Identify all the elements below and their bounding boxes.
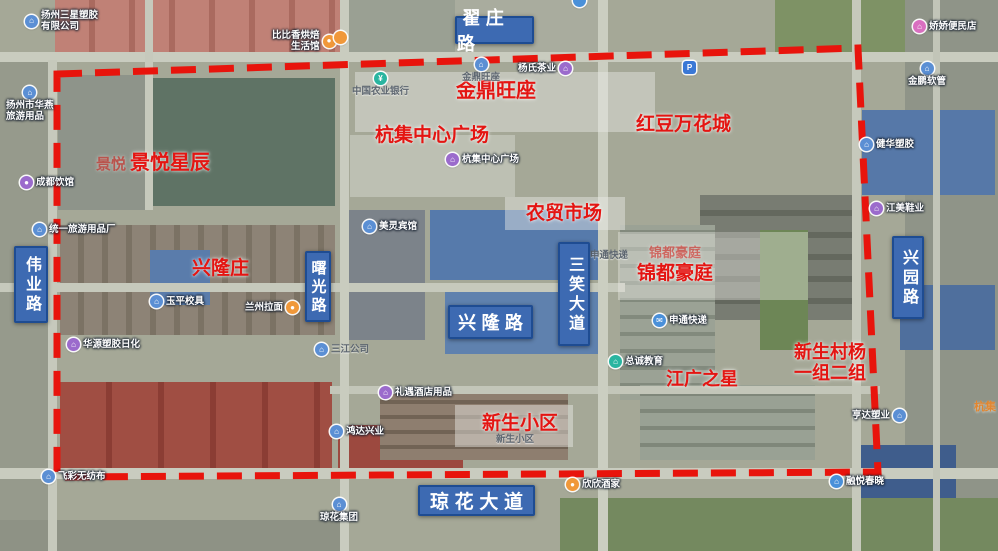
road-label: 伟业路 [14, 246, 48, 323]
poi-label-text: 扬州市华燕 旅游用品 [6, 100, 54, 123]
poi-label-text: 成都饮馆 [36, 177, 74, 188]
building-icon: ⌂ [33, 223, 46, 236]
poi-label-text: 华源塑胶日化 [83, 339, 140, 350]
poi-label-text: 杭集中心广场 [462, 154, 519, 165]
building-icon: ⌂ [150, 295, 163, 308]
poi-xinsheng-community: 新生小区 [496, 434, 534, 445]
terrain-patch [345, 0, 455, 55]
building-icon: ⌂ [893, 409, 906, 422]
area-label: 景悦 [96, 156, 126, 174]
poi-huayan-travel-goods: ⌂扬州市华燕 旅游用品 [6, 86, 54, 123]
poi-shentong-express-1: 申通快递 [590, 250, 628, 261]
map-pin-icon [573, 0, 586, 7]
building-icon: ⌂ [921, 62, 934, 75]
poi-label-text: 娇娇便民店 [929, 21, 977, 32]
terrain-patch [640, 385, 815, 460]
poi-hongda-xingye: ⌂鸿达兴业 [330, 425, 384, 438]
terrain-patch [862, 110, 995, 195]
poi-hangji-town: 杭集 [974, 401, 996, 414]
satellite-map: 景悦景悦星辰金鼎旺座杭集中心广场红豆万花城农贸市场兴隆庄锦都豪庭锦都豪庭江广之星… [0, 0, 998, 551]
poi-label-text: 扬州三星塑胶 有限公司 [41, 10, 98, 33]
road-label: 翟庄路 [455, 16, 534, 44]
poi-label-text: 金鹏软管 [908, 76, 946, 87]
poi-label-text: 金鼎旺座 [462, 72, 500, 83]
plaza-icon: ⌂ [446, 153, 459, 166]
poi-orange-dot [334, 31, 347, 44]
building-icon: ⌂ [42, 470, 55, 483]
poi-bibixiang-bakery: ●比比香烘焙 生活馆 [272, 30, 336, 53]
poi-label-text: 新生小区 [496, 434, 534, 445]
building-icon: ⌂ [330, 425, 343, 438]
restaurant-icon: ● [286, 301, 299, 314]
shop-icon: ⌂ [559, 62, 572, 75]
poi-label-text: 礼遇酒店用品 [395, 387, 452, 398]
poi-hangji-plaza: ⌂杭集中心广场 [446, 153, 519, 166]
road-label: 琼花大道 [418, 485, 535, 516]
poi-sanjiang-company: ⌂三江公司 [315, 343, 369, 356]
terrain-patch [340, 0, 349, 551]
area-label: 杭集中心广场 [375, 125, 489, 147]
education-icon: ⌂ [609, 355, 622, 368]
poi-label-text: 鸿达兴业 [346, 426, 384, 437]
area-label: 锦都豪庭 [637, 263, 713, 285]
restaurant-icon: ● [20, 176, 33, 189]
poi-qionghua-group: ⌂琼花集团 [320, 498, 358, 523]
area-label: 金鼎旺座 [456, 80, 536, 104]
poi-label-text: 比比香烘焙 生活馆 [272, 30, 320, 53]
poi-zongcheng-education: ⌂总诚教育 [609, 355, 663, 368]
poi-label-text: 飞彩无纺布 [58, 471, 106, 482]
poi-tongyi-travel-factory: ⌂统一旅游用品厂 [33, 223, 116, 236]
poi-abc-bank: ¥中国农业银行 [352, 72, 409, 97]
road-label: 三笑大道 [558, 242, 590, 346]
poi-jiangmei-shoes: ⌂江美鞋业 [870, 202, 924, 215]
poi-label-text: 申通快递 [669, 315, 707, 326]
area-label: 农贸市场 [526, 203, 602, 225]
area-label: 新生小区 [482, 413, 558, 435]
poi-label-text: 玉平校具 [166, 296, 204, 307]
road-label: 曙光路 [305, 251, 331, 322]
poi-jiaojiao-store: ⌂娇娇便民店 [913, 20, 977, 33]
poi-yangshi-tea: ⌂杨氏茶业 [518, 62, 572, 75]
area-label: 景悦星辰 [130, 152, 210, 176]
terrain-patch [60, 382, 332, 470]
store-icon: ⌂ [913, 20, 926, 33]
building-icon: ⌂ [333, 498, 346, 511]
poi-jinpeng-hose: ⌂金鹏软管 [908, 62, 946, 87]
poi-jinding-wangzuo: ⌂金鼎旺座 [462, 58, 500, 83]
area-label: 新生村杨 一组二组 [794, 342, 866, 384]
poi-xinxin-restaurant: ●欣欣酒家 [566, 478, 620, 491]
poi-dot-icon [334, 31, 347, 44]
building-icon: ⌂ [23, 86, 36, 99]
poi-label-text: 美灵宾馆 [379, 221, 417, 232]
poi-shentong-express-2: ✉申通快递 [653, 314, 707, 327]
poi-yuping-school-furniture: ⌂玉平校具 [150, 295, 204, 308]
poi-label-text: 融悦春晓 [846, 476, 884, 487]
building-icon: ⌂ [860, 138, 873, 151]
poi-liyu-hotel-supplies: ⌂礼遇酒店用品 [379, 386, 452, 399]
building-icon: ⌂ [25, 15, 38, 28]
area-label: 兴隆庄 [192, 258, 249, 280]
poi-meiling-hotel: ⌂美灵宾馆 [363, 220, 417, 233]
area-label: 江广之星 [666, 369, 738, 390]
poi-huayuan-daily-chem: ⌂华源塑胶日化 [67, 338, 140, 351]
poi-feicai-nonwoven: ⌂飞彩无纺布 [42, 470, 106, 483]
poi-label-text: 琼花集团 [320, 512, 358, 523]
poi-yangzhou-sanxing: ⌂扬州三星塑胶 有限公司 [25, 10, 98, 33]
terrain-patch [775, 0, 905, 54]
poi-label-text: 杨氏茶业 [518, 63, 556, 74]
road-label: 兴园路 [892, 236, 924, 319]
poi-label-text: 健华塑胶 [876, 139, 914, 150]
shop-icon: ⌂ [379, 386, 392, 399]
poi-label-text: 杭集 [974, 401, 996, 414]
restaurant-icon: ● [566, 478, 579, 491]
shop-icon: ⌂ [870, 202, 883, 215]
terrain-patch [145, 0, 153, 210]
poi-label-text: 欣欣酒家 [582, 479, 620, 490]
poi-map-pin-top [573, 0, 586, 7]
terrain-patch [852, 0, 861, 551]
road-label: 兴隆路 [448, 305, 533, 339]
poi-jianhua-plastics: ⌂健华塑胶 [860, 138, 914, 151]
building-icon: ⌂ [315, 343, 328, 356]
poi-label-text: 申通快递 [590, 250, 628, 261]
poi-label-text: 亨达塑业 [852, 410, 890, 421]
bank-icon: ¥ [374, 72, 387, 85]
poi-label-text: 总诚教育 [625, 356, 663, 367]
poi-lanzhou-noodles: ●兰州拉面 [245, 301, 299, 314]
area-label: 红豆万花城 [636, 114, 731, 136]
hotel-icon: ⌂ [363, 220, 376, 233]
poi-label-text: 中国农业银行 [352, 86, 409, 97]
building-icon: ⌂ [67, 338, 80, 351]
poi-label-text: 三江公司 [331, 344, 369, 355]
poi-parking: P [683, 61, 696, 74]
poi-label-text: 江美鞋业 [886, 203, 924, 214]
terrain-patch [58, 75, 153, 210]
area-label: 锦都豪庭 [649, 245, 701, 260]
terrain-patch [150, 78, 335, 206]
express-icon: ✉ [653, 314, 666, 327]
poi-chengdu-restaurant: ●成都饮馆 [20, 176, 74, 189]
poi-rongyue-chunxiao: ⌂融悦春晓 [830, 475, 884, 488]
poi-hengda-suye: ⌂亨达塑业 [852, 409, 906, 422]
poi-label-text: 兰州拉面 [245, 302, 283, 313]
residence-icon: ⌂ [830, 475, 843, 488]
building-icon: ⌂ [475, 58, 488, 71]
poi-label-text: 统一旅游用品厂 [49, 224, 116, 235]
parking-icon: P [683, 61, 696, 74]
